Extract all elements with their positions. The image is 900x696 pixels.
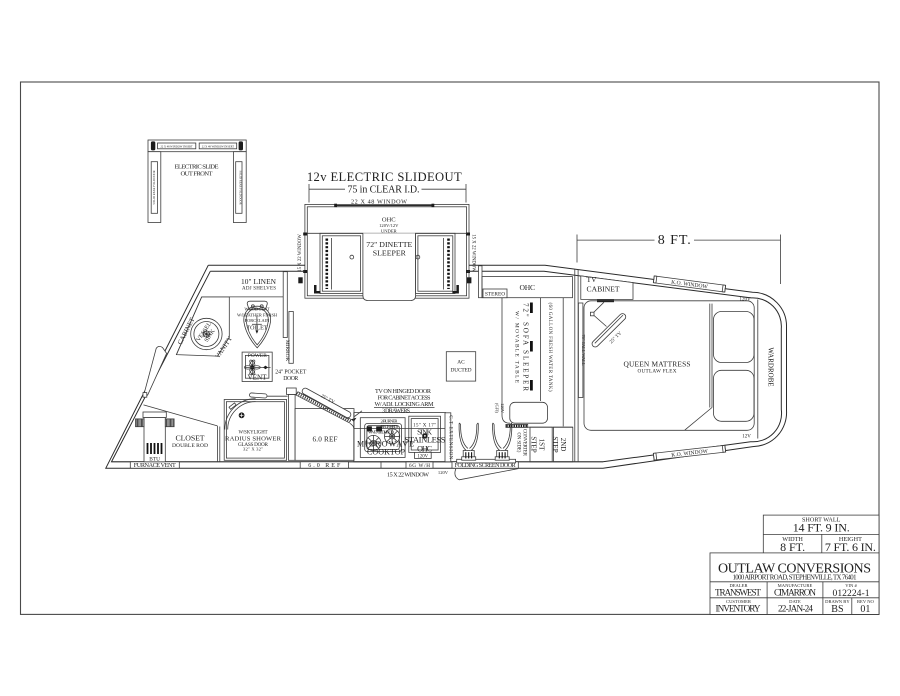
svg-text:22 X 48 WINDOW INSERT: 22 X 48 WINDOW INSERT xyxy=(202,146,234,149)
svg-text:TOILET: TOILET xyxy=(247,326,268,332)
svg-text:TV: TV xyxy=(587,275,598,284)
svg-text:7 FT. 6 IN.: 7 FT. 6 IN. xyxy=(825,540,876,554)
svg-text:BS: BS xyxy=(831,604,843,615)
svg-text:W/ VENTED HOOD: W/ VENTED HOOD xyxy=(368,430,395,435)
svg-text:FOLDING SCREEN DOOR: FOLDING SCREEN DOOR xyxy=(455,463,516,469)
svg-text:24" POCKET: 24" POCKET xyxy=(275,370,306,376)
svg-text:3 DRAWERS: 3 DRAWERS xyxy=(382,408,411,415)
svg-text:STAINLESS: STAINLESS xyxy=(405,434,446,444)
svg-text:DOUBLE ROD: DOUBLE ROD xyxy=(172,443,208,449)
svg-text:6.0 REF: 6.0 REF xyxy=(308,463,341,469)
svg-text:10" LINEN: 10" LINEN xyxy=(241,277,277,286)
svg-text:MIRROR: MIRROR xyxy=(284,340,290,362)
svg-text:W/ ADJ. LOCKING ARM: W/ ADJ. LOCKING ARM xyxy=(375,401,434,408)
svg-text:CIMARRON: CIMARRON xyxy=(774,588,816,598)
svg-text:1ST: 1ST xyxy=(538,439,546,451)
svg-text:SOLID REAR FOLD DOOR: SOLID REAR FOLD DOOR xyxy=(152,170,156,204)
svg-text:SLEEPER: SLEEPER xyxy=(373,248,407,257)
svg-text:VENT: VENT xyxy=(248,373,268,381)
svg-text:14 FT. 9 IN.: 14 FT. 9 IN. xyxy=(793,521,850,535)
svg-text:12V: 12V xyxy=(742,435,751,440)
svg-text:120V: 120V xyxy=(438,470,449,475)
svg-text:78" TALL WALL: 78" TALL WALL xyxy=(581,334,586,365)
svg-text:01: 01 xyxy=(860,604,870,615)
svg-text:2ND: 2ND xyxy=(559,438,567,452)
svg-text:TRANSWEST: TRANSWEST xyxy=(715,588,761,598)
svg-text:COOKTOP: COOKTOP xyxy=(367,448,406,457)
svg-text:C.T EXTENSION: C.T EXTENSION xyxy=(447,415,452,459)
svg-text:AC: AC xyxy=(457,359,465,365)
svg-text:DOOR: DOOR xyxy=(283,376,298,382)
svg-text:120V: 120V xyxy=(500,403,505,414)
svg-text:OHC: OHC xyxy=(520,283,536,292)
svg-text:120V/12V: 120V/12V xyxy=(379,223,399,228)
svg-text:120V: 120V xyxy=(739,298,751,303)
svg-text:120V: 120V xyxy=(417,454,428,459)
svg-text:WARDROBE: WARDROBE xyxy=(767,347,775,386)
svg-text:22 X 48 WINDOW INSERT: 22 X 48 WINDOW INSERT xyxy=(160,146,192,149)
svg-text:72" SOFA SLEEPER: 72" SOFA SLEEPER xyxy=(522,303,530,391)
svg-text:OUTLAW FLEX: OUTLAW FLEX xyxy=(638,368,677,374)
svg-text:(60 GALLON FRESH WATER TANK): (60 GALLON FRESH WATER TANK) xyxy=(547,303,552,392)
svg-text:6G W/H: 6G W/H xyxy=(409,463,430,469)
svg-text:(RECESSED): (RECESSED) xyxy=(380,424,398,429)
svg-text:FURNACE VENT: FURNACE VENT xyxy=(134,462,176,469)
svg-text:BTU: BTU xyxy=(149,456,160,462)
svg-text:6.0 REF: 6.0 REF xyxy=(313,436,338,444)
svg-text:PORCELAIN: PORCELAIN xyxy=(245,318,270,323)
svg-text:8 FT.: 8 FT. xyxy=(780,540,805,554)
svg-text:22-JAN-24: 22-JAN-24 xyxy=(778,604,813,614)
svg-text:2-BURNER: 2-BURNER xyxy=(381,418,399,423)
svg-text:ON SIDE): ON SIDE) xyxy=(516,432,521,452)
svg-text:QUEEN MATTRESS: QUEEN MATTRESS xyxy=(624,359,691,368)
svg-text:15 X 22 WINDOW: 15 X 22 WINDOW xyxy=(387,471,429,478)
svg-text:WOOD SEAT: WOOD SEAT xyxy=(244,306,270,311)
svg-text:ELECTRIC SLIDE: ELECTRIC SLIDE xyxy=(175,163,219,170)
svg-text:DUCTED: DUCTED xyxy=(451,367,472,373)
svg-text:UNDER: UNDER xyxy=(381,228,398,233)
svg-text:ADJ SHELVES: ADJ SHELVES xyxy=(242,287,276,292)
svg-text:OUT FRONT: OUT FRONT xyxy=(181,171,213,178)
svg-text:CLOSET: CLOSET xyxy=(176,434,205,443)
svg-text:STEP: STEP xyxy=(530,436,538,452)
svg-text:STEP: STEP xyxy=(551,436,559,452)
svg-text:(GFI): (GFI) xyxy=(495,403,500,414)
svg-text:8 FT.: 8 FT. xyxy=(658,233,691,248)
svg-text:W/LEATHER FINISH: W/LEATHER FINISH xyxy=(237,312,278,317)
svg-text:POWER: POWER xyxy=(248,353,267,359)
svg-text:75 in CLEAR I.D.: 75 in CLEAR I.D. xyxy=(348,184,420,195)
svg-text:15 X 22 WINDOW: 15 X 22 WINDOW xyxy=(471,234,476,272)
svg-text:SOLID REAR FOLD DOOR: SOLID REAR FOLD DOOR xyxy=(239,170,243,204)
svg-text:32" X 32": 32" X 32" xyxy=(243,447,263,452)
svg-text:CONVERTER: CONVERTER xyxy=(522,429,527,457)
svg-text:012224-1: 012224-1 xyxy=(833,588,870,599)
svg-text:STEREO: STEREO xyxy=(485,292,505,298)
svg-text:CABINET: CABINET xyxy=(587,285,620,294)
svg-text:15 X 22 WINDOW: 15 X 22 WINDOW xyxy=(298,234,303,272)
svg-text:INVENTORY: INVENTORY xyxy=(716,604,761,614)
svg-text:12v ELECTRIC SLIDEOUT: 12v ELECTRIC SLIDEOUT xyxy=(307,170,462,184)
svg-text:1000 AIRPORT ROAD, STEPHENVILL: 1000 AIRPORT ROAD, STEPHENVILLE, TX 7640… xyxy=(733,575,857,582)
